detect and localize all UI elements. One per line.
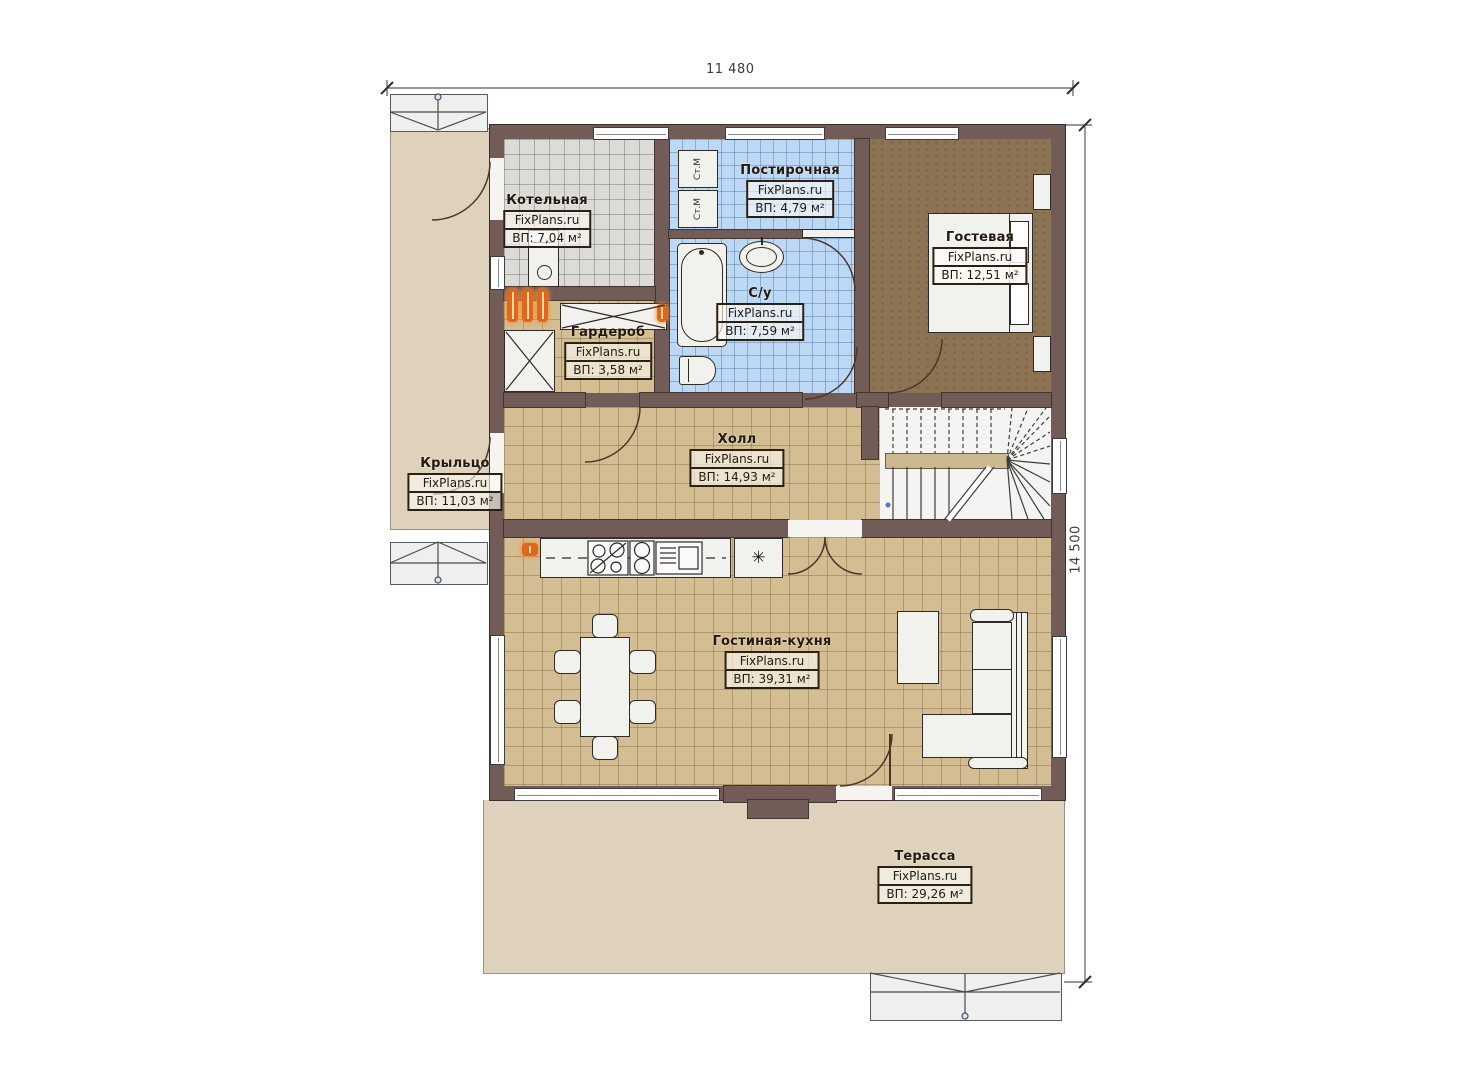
laundry-bath-door-leaf (802, 229, 855, 238)
coffee-table (897, 611, 939, 684)
room-area: ВП: 4,79 м² (748, 200, 832, 216)
porch-steps-top (390, 94, 488, 132)
window-left-living (490, 635, 505, 765)
wall-laundry-bath (669, 230, 802, 238)
wall-boiler-laundry (655, 139, 669, 393)
room-name: Крыльцо (407, 456, 502, 471)
washer-1-label: Ст.М (680, 150, 716, 188)
radiator-bath (657, 304, 667, 322)
fridge-snowflake-icon: ✳ (735, 539, 782, 577)
room-name: Холл (689, 432, 784, 447)
room-name: Котельная (503, 193, 591, 208)
window-top-1 (593, 127, 669, 140)
bathroom-sink (739, 241, 784, 273)
window-top-2 (725, 127, 825, 140)
room-area: ВП: 3,58 м² (566, 362, 650, 378)
wall-hall-top-4 (942, 393, 1051, 407)
room-label-gostinaya: Гостиная-кухня FixPlans.ru ВП: 39,31 м² (713, 634, 832, 689)
nightstand-bottom (1033, 336, 1051, 372)
window-left-boiler (490, 256, 505, 290)
brand-text: FixPlans.ru (566, 344, 650, 362)
room-name: Гардероб (564, 325, 652, 340)
room-area: ВП: 29,26 м² (879, 886, 970, 902)
dimension-width-label: 11 480 (706, 62, 755, 77)
room-label-su: С/у FixPlans.ru ВП: 7,59 м² (716, 286, 804, 341)
nightstand-top (1033, 174, 1051, 210)
wall-hall-living-2 (862, 520, 1051, 537)
dining-chair-right-2 (629, 700, 656, 724)
hall-living-door-opening (788, 520, 862, 537)
room-label-garderob: Гардероб FixPlans.ru ВП: 3,58 м² (564, 325, 652, 380)
brand-text: FixPlans.ru (726, 653, 817, 671)
terrace-steps (870, 973, 1062, 1021)
sofa-seat-horizontal (922, 714, 1012, 758)
floor-plan-canvas: 11 480 14 500 С (0, 0, 1473, 1080)
room-name: Гостевая (932, 230, 1027, 245)
room-label-krylco: Крыльцо FixPlans.ru ВП: 11,03 м² (407, 456, 502, 511)
wall-hall-top-3 (857, 393, 888, 407)
kitchen-counter (540, 538, 731, 578)
dining-chair-left-1 (554, 650, 581, 674)
window-right-living (1052, 636, 1067, 758)
brand-text: FixPlans.ru (691, 451, 782, 469)
wall-hall-living-1 (504, 520, 788, 537)
radiator-3 (537, 289, 548, 322)
porch-steps-bottom (390, 542, 488, 585)
dining-chair-right-1 (629, 650, 656, 674)
room-area: ВП: 7,04 м² (505, 230, 589, 246)
toilet (679, 356, 716, 385)
dining-chair-left-2 (554, 700, 581, 724)
sofa-armrest-bottom (968, 757, 1028, 769)
dining-chair-top (592, 614, 618, 638)
sofa-seat-vertical (972, 622, 1012, 714)
window-bottom-left (514, 788, 720, 801)
brand-text: FixPlans.ru (879, 868, 970, 886)
window-right-stairs (1052, 438, 1067, 494)
room-area: ВП: 39,31 м² (726, 671, 817, 687)
room-area: ВП: 11,03 м² (409, 493, 500, 509)
room-label-holl: Холл FixPlans.ru ВП: 14,93 м² (689, 432, 784, 487)
window-bottom-right (894, 788, 1042, 801)
sofa-armrest-top (970, 609, 1014, 622)
washing-machine-2: Ст.М (678, 190, 718, 228)
chimney-protrusion (748, 800, 808, 818)
brand-text: FixPlans.ru (934, 249, 1025, 267)
wall-bath-guest (855, 139, 869, 393)
fridge: ✳ (734, 538, 783, 578)
brand-text: FixPlans.ru (505, 212, 589, 230)
wardrobe-cabinet-vertical (504, 330, 555, 392)
window-top-3 (885, 127, 959, 140)
washing-machine-1: Ст.М (678, 150, 718, 188)
dining-chair-bottom (592, 736, 618, 760)
wall-stair-stub (862, 407, 878, 459)
room-label-gostevaya: Гостевая FixPlans.ru ВП: 12,51 м² (932, 230, 1027, 285)
dining-table (580, 637, 630, 737)
radiator-1 (507, 289, 518, 322)
radiator-2 (522, 289, 533, 322)
stairs-landing (885, 453, 1009, 469)
room-area: ВП: 7,59 м² (718, 323, 802, 339)
room-name: Гостиная-кухня (713, 634, 832, 649)
brand-text: FixPlans.ru (718, 305, 802, 323)
room-label-kotelnaya: Котельная FixPlans.ru ВП: 7,04 м² (503, 193, 591, 248)
wall-hall-top-1 (504, 393, 585, 407)
room-name: С/у (716, 286, 804, 301)
sofa-back (1010, 612, 1028, 769)
terrace-floor (483, 800, 1065, 974)
room-area: ВП: 14,93 м² (691, 469, 782, 485)
brand-text: FixPlans.ru (748, 182, 832, 200)
washer-2-label: Ст.М (680, 190, 716, 228)
porch-door-opening-upper (490, 158, 504, 220)
brand-text: FixPlans.ru (409, 475, 500, 493)
radiator-kitchen (522, 543, 538, 556)
wall-hall-top-2 (640, 393, 802, 407)
room-label-terassa: Терасса FixPlans.ru ВП: 29,26 м² (877, 849, 972, 904)
dimension-height-label: 14 500 (1069, 510, 1084, 590)
terrace-door-opening (836, 786, 892, 800)
room-area: ВП: 12,51 м² (934, 267, 1025, 283)
room-name: Терасса (877, 849, 972, 864)
room-label-postirochnaya: Постирочная FixPlans.ru ВП: 4,79 м² (740, 163, 840, 218)
room-name: Постирочная (740, 163, 840, 178)
